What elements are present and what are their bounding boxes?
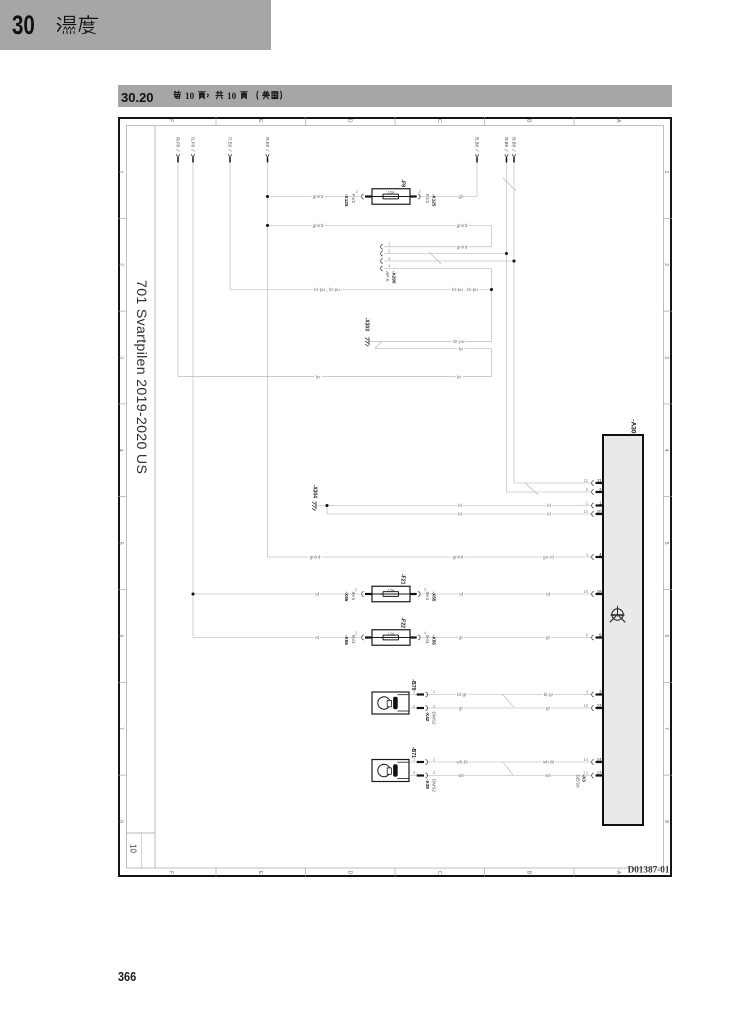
svg-text:1: 1 [586, 500, 589, 505]
svg-text:bl: bl [547, 512, 551, 517]
svg-text:11: 11 [584, 478, 589, 483]
svg-text:D01387-01: D01387-01 [628, 865, 670, 875]
svg-text:gn-rd: gn-rd [543, 555, 554, 560]
svg-text:13: 13 [583, 770, 588, 775]
svg-text:14: 14 [597, 757, 602, 762]
svg-text:gn/rd: gn/rd [313, 223, 324, 228]
svg-text:wh-bl: wh-bl [456, 760, 467, 765]
svg-text:rd: rd [546, 592, 551, 597]
svg-text:2: 2 [413, 704, 416, 709]
svg-text:bl-gr: bl-gr [544, 692, 554, 697]
svg-text:rd: rd [315, 592, 320, 597]
svg-text:gn/rd: gn/rd [453, 555, 464, 560]
svg-text:gb: gb [458, 194, 464, 199]
svg-text:1: 1 [413, 756, 416, 761]
svg-text:br-pu , br-pu: br-pu , br-pu [452, 287, 478, 292]
svg-text:br: br [459, 346, 464, 351]
svg-text:rd: rd [315, 635, 320, 640]
svg-text:br: br [316, 374, 321, 379]
svg-text:2: 2 [355, 631, 358, 636]
svg-text:bl: bl [547, 503, 551, 508]
svg-text:2: 2 [586, 487, 589, 492]
svg-text:10: 10 [597, 509, 602, 514]
svg-text:1: 1 [388, 242, 391, 247]
svg-text:4: 4 [586, 552, 589, 557]
svg-text:rd: rd [459, 592, 464, 597]
svg-text:br-pu: br-pu [454, 339, 465, 344]
svg-text:10: 10 [583, 509, 588, 514]
svg-text:4: 4 [388, 263, 391, 268]
svg-text:gr: gr [546, 706, 551, 711]
svg-text:9: 9 [586, 632, 589, 637]
svg-text:4: 4 [424, 631, 427, 636]
svg-text:1: 1 [356, 189, 359, 194]
svg-text:3: 3 [599, 689, 602, 694]
svg-text:wh: wh [545, 773, 551, 778]
svg-text:gn/rd: gn/rd [457, 244, 468, 249]
svg-text:3: 3 [388, 256, 391, 261]
svg-text:10A: 10A [388, 632, 395, 636]
svg-text:bl: bl [458, 512, 462, 517]
svg-text:bl-gr: bl-gr [457, 692, 467, 697]
svg-text:gn/rd: gn/rd [457, 223, 468, 228]
svg-text:br: br [457, 374, 462, 379]
svg-text:gr: gr [546, 635, 551, 640]
svg-text:1: 1 [433, 756, 436, 761]
svg-text:2: 2 [599, 487, 602, 492]
svg-text:2: 2 [433, 770, 436, 775]
svg-text:2: 2 [433, 704, 436, 709]
svg-text:gr: gr [459, 706, 464, 711]
svg-text:4: 4 [599, 552, 602, 557]
svg-text:1: 1 [433, 689, 436, 694]
svg-text:wh-bl: wh-bl [543, 760, 554, 765]
svg-text:gn/rd: gn/rd [313, 194, 324, 199]
svg-text:9: 9 [599, 632, 602, 637]
svg-text:1: 1 [599, 500, 602, 505]
svg-text:11: 11 [597, 478, 602, 483]
svg-text:15A: 15A [388, 191, 395, 195]
svg-text:2: 2 [388, 248, 391, 253]
svg-text:13: 13 [597, 770, 602, 775]
svg-text:18: 18 [597, 589, 602, 594]
svg-text:3: 3 [586, 689, 589, 694]
svg-text:14: 14 [583, 757, 588, 762]
svg-text:3: 3 [424, 587, 427, 592]
svg-text:12: 12 [583, 703, 588, 708]
svg-text:15A: 15A [388, 588, 395, 592]
svg-text:12: 12 [597, 703, 602, 708]
svg-text:1: 1 [413, 689, 416, 694]
svg-text:gr: gr [459, 635, 464, 640]
svg-text:gn/rd: gn/rd [310, 555, 321, 560]
svg-text:wh: wh [458, 773, 464, 778]
svg-text:2: 2 [413, 770, 416, 775]
svg-text:18: 18 [583, 589, 588, 594]
svg-text:2: 2 [418, 189, 421, 194]
svg-text:br-pu , br-pu: br-pu , br-pu [314, 287, 340, 292]
svg-text:bl: bl [458, 503, 462, 508]
svg-text:1: 1 [355, 587, 358, 592]
